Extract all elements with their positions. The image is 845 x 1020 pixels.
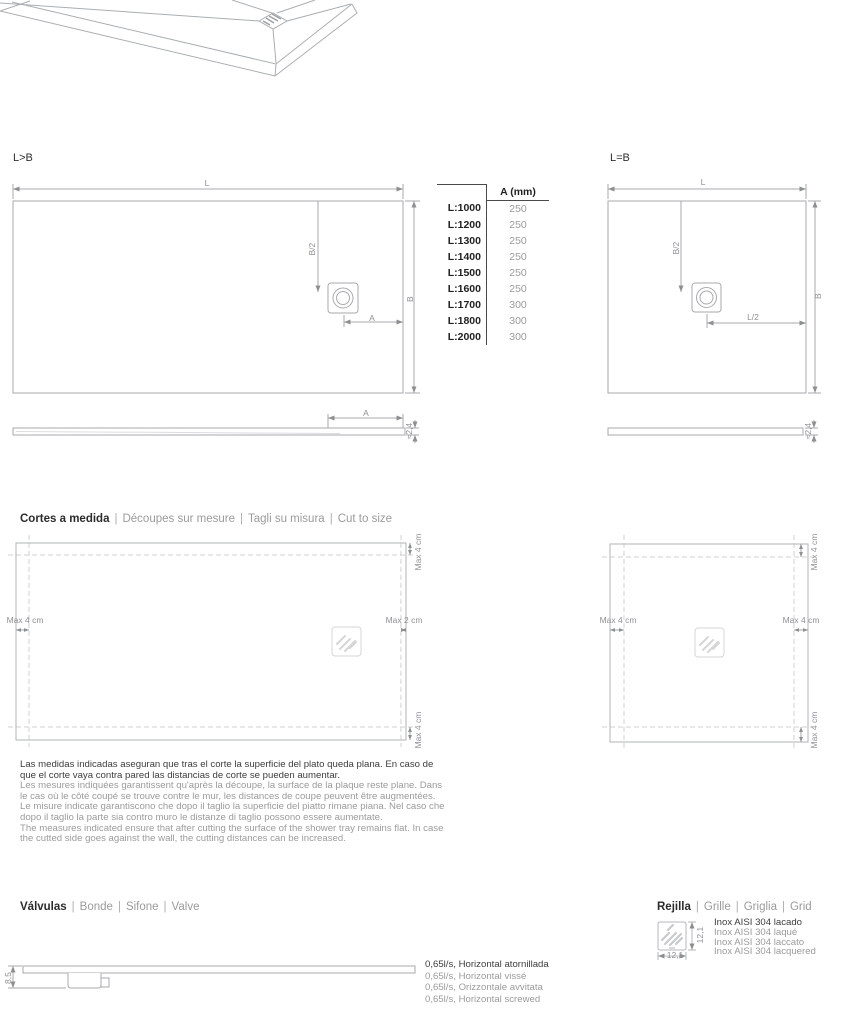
table-row: L:1700300 [437, 297, 549, 313]
title-es: Rejilla [657, 901, 691, 913]
max-cut-top: Max 4 cm [809, 530, 819, 574]
dim-B: B [813, 288, 823, 304]
title-fr: Bonde [80, 901, 113, 913]
title-es: Cortes a medida [20, 513, 109, 525]
valve-body [68, 973, 101, 988]
table-row: L:1400250 [437, 249, 549, 265]
plan-right-label: L=B [610, 152, 630, 164]
table-row: L:1200250 [437, 217, 549, 233]
dim-L2: L/2 [742, 312, 764, 322]
cut-diagram-left [0, 533, 440, 751]
title-it: Griglia [744, 901, 777, 913]
dim-L: L [202, 178, 212, 188]
max-cut-right: Max 4 cm [776, 615, 826, 625]
valve-spec-es: 0,65l/s, Horizontal atornillada [425, 959, 549, 971]
grid-specs: Inox AISI 304 lacado Inox AISI 304 laqué… [714, 918, 816, 957]
title-en: Cut to size [338, 513, 392, 525]
valve-profile-diagram [0, 945, 440, 1005]
title-fr: Grille [704, 901, 731, 913]
valve-spec-en: 0,65l/s, Horizontal screwed [425, 994, 549, 1006]
note-it: Le misure indicate garantiscono che dopo… [20, 802, 446, 823]
dim-thickness: ≈2,4 [404, 419, 414, 443]
table-row: L:1600250 [437, 281, 549, 297]
valve-spec-fr: 0,65l/s, Horizontal vissé [425, 971, 549, 983]
dim-B2: B/2 [671, 236, 681, 260]
title-fr: Découpes sur mesure [122, 513, 235, 525]
cut-diagram-right [585, 533, 845, 751]
dim-thickness: ≈2,4 [803, 419, 813, 443]
title-en: Grid [790, 901, 812, 913]
table-row: L:1800300 [437, 313, 549, 329]
max-cut-left: Max 4 cm [0, 615, 50, 625]
table-row: L:2000300 [437, 329, 549, 345]
title-it: Sifone [126, 901, 159, 913]
valves-section-title: Válvulas|Bonde|Sifone|Valve [20, 901, 199, 913]
plan-diagram-leqb [600, 180, 845, 402]
dim-grid-width: 12,1 [662, 950, 688, 960]
dim-grid-height: 12,1 [695, 924, 705, 946]
dim-B: B [405, 291, 415, 307]
table-row: L:1300250 [437, 233, 549, 249]
valve-spec-it: 0,65l/s, Orizzontale avvitata [425, 982, 549, 994]
title-it: Tagli su misura [248, 513, 325, 525]
grid-section-title: Rejilla|Grille|Griglia|Grid [657, 901, 812, 913]
dim-valve-height: 8,5 [3, 969, 13, 987]
max-cut-bottom: Max 4 cm [809, 708, 819, 752]
note-es: Las medidas indicadas aseguran que tras … [20, 760, 446, 781]
table-row: L:1000250 [437, 200, 549, 217]
plan-left-label: L>B [13, 152, 33, 164]
tray-profile [608, 428, 803, 435]
table-header: A (mm) [487, 185, 550, 201]
cut-section-title: Cortes a medida|Découpes sur mesure|Tagl… [20, 513, 392, 525]
cut-note: Las medidas indicadas aseguran que tras … [20, 760, 446, 845]
note-en: The measures indicated ensure that after… [20, 824, 446, 845]
max-cut-right: Max 2 cm [379, 615, 429, 625]
dim-A: A [360, 408, 372, 418]
valve-outlet [101, 978, 109, 987]
size-table: A (mm) L:1000250 L:1200250 L:1300250 L:1… [437, 184, 549, 345]
dim-A: A [366, 313, 378, 323]
max-cut-top: Max 4 cm [413, 530, 423, 574]
tray-3d-drawing [0, 0, 380, 85]
plan-diagram-lgtb [0, 180, 430, 402]
max-cut-left: Max 4 cm [593, 615, 643, 625]
table-row: L:1500250 [437, 265, 549, 281]
max-cut-bottom: Max 4 cm [413, 708, 423, 752]
valve-specs: 0,65l/s, Horizontal atornillada 0,65l/s,… [425, 959, 549, 1005]
title-es: Válvulas [20, 901, 67, 913]
title-en: Valve [172, 901, 200, 913]
tray-profile [23, 966, 415, 973]
note-fr: Les mesures indiquées garantissent qu'ap… [20, 781, 446, 802]
dim-B2: B/2 [307, 237, 317, 261]
dim-L: L [698, 177, 708, 187]
grid-spec-en: Inox AISI 304 lacquered [714, 947, 816, 957]
